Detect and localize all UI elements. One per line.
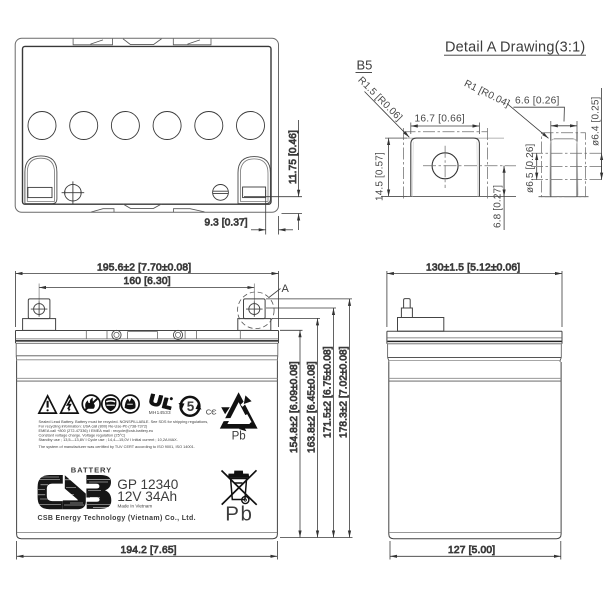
svg-text:Pb: Pb <box>225 502 253 525</box>
svg-text:Made In Vietnam: Made In Vietnam <box>118 504 153 509</box>
svg-text:194.2 [7.65]: 194.2 [7.65] <box>121 545 177 556</box>
svg-text:16.7 [0.66]: 16.7 [0.66] <box>415 114 465 125</box>
svg-text:ø6.5 [0.26]: ø6.5 [0.26] <box>525 143 536 193</box>
svg-text:11.75 [0.46]: 11.75 [0.46] <box>288 130 299 184</box>
svg-text:163.8±2 [6.45±0.08]: 163.8±2 [6.45±0.08] <box>307 361 318 453</box>
svg-text:Sealed Lead Battery. Battery m: Sealed Lead Battery. Battery must be rec… <box>39 420 209 424</box>
svg-text:For recycling information: USA: For recycling information: USA call (800… <box>39 424 148 428</box>
svg-text:127 [5.00]: 127 [5.00] <box>448 545 495 556</box>
svg-text:130±1.5 [5.12±0.06]: 130±1.5 [5.12±0.06] <box>426 262 520 273</box>
svg-text:The system of manufacturer was: The system of manufacturer was certified… <box>39 445 195 449</box>
svg-text:B5: B5 <box>357 58 373 73</box>
svg-text:CSB Energy Technology (Vietnam: CSB Energy Technology (Vietnam) Co., Ltd… <box>38 515 196 522</box>
svg-text:9.3 [0.37]: 9.3 [0.37] <box>205 217 248 228</box>
svg-text:Standby use ; 13,5—13,8V I C: Standby use ; 13,5—13,8V I Cycle use ; 1… <box>39 438 178 442</box>
svg-text:Constant voltage charge. Volta: Constant voltage charge. Voltage regulat… <box>39 434 127 438</box>
svg-text:Pb: Pb <box>232 430 246 442</box>
svg-text:12V 34Ah: 12V 34Ah <box>117 489 177 504</box>
svg-text:171.5±2 [6.75±0.08]: 171.5±2 [6.75±0.08] <box>323 346 334 438</box>
svg-text:CЄ: CЄ <box>206 408 217 417</box>
svg-text:178.3±2 [7.02±0.08]: 178.3±2 [7.02±0.08] <box>339 346 350 438</box>
svg-text:160 [6.30]: 160 [6.30] <box>124 276 171 287</box>
svg-text:MH14533: MH14533 <box>149 410 171 415</box>
svg-text:EMEA call +800 (272-47336) I: EMEA call +800 (272-47336) I EMEA mail :… <box>39 429 154 433</box>
svg-text:14.5 [0.57]: 14.5 [0.57] <box>375 152 386 201</box>
svg-text:R1 [R0.04]: R1 [R0.04] <box>462 78 511 110</box>
svg-text:154.8±2 [6.09±0.08]: 154.8±2 [6.09±0.08] <box>289 361 300 453</box>
svg-text:BATTERY: BATTERY <box>71 465 112 474</box>
svg-text:ø6.4 [0.25]: ø6.4 [0.25] <box>591 96 602 146</box>
svg-text:6.6 [0.26]: 6.6 [0.26] <box>515 96 559 107</box>
svg-text:A: A <box>282 283 290 295</box>
svg-text:Detail A Drawing(3:1): Detail A Drawing(3:1) <box>445 40 585 56</box>
svg-text:R1.5 [R0.06]: R1.5 [R0.06] <box>355 75 404 124</box>
svg-text:195.6±2 [7.70±0.08]: 195.6±2 [7.70±0.08] <box>97 262 191 273</box>
svg-text:6.8 [0.27]: 6.8 [0.27] <box>493 185 504 228</box>
svg-text:5: 5 <box>187 399 195 414</box>
